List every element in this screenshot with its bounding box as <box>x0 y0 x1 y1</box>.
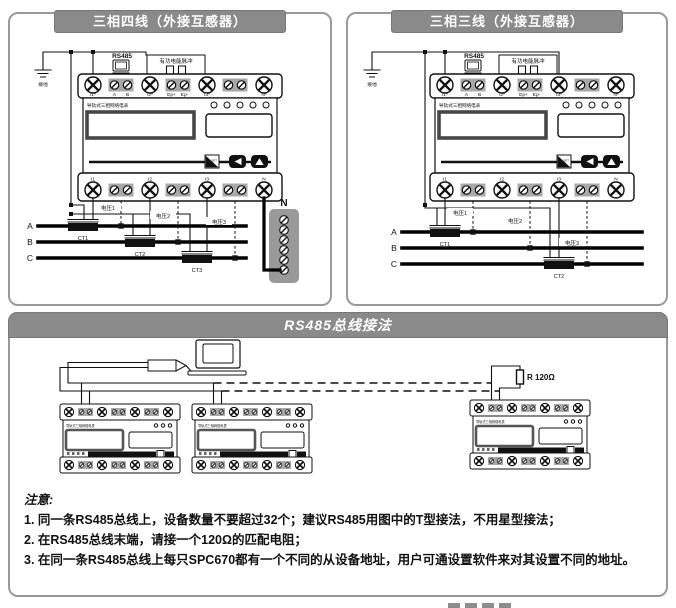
phase-label: C <box>391 259 397 269</box>
ct-label: CT3 <box>192 268 202 274</box>
ct-label: CT2 <box>135 252 145 258</box>
three-wire-diagram: 接地 RS485 有功电能脉冲 A B C CT1 CT2 电压1 电压2 电压… <box>348 14 666 304</box>
rs485-converter-icon <box>148 360 176 371</box>
bus-wire-dashed <box>214 383 500 391</box>
ground-label: 接地 <box>38 81 48 88</box>
ct3 <box>182 255 212 263</box>
panel-title-three-wire: 三相三线（外接互感器） <box>391 10 623 33</box>
note-item-3: 3. 在同一条RS485总线上每只SPC670都有一个不同的从设备地址，用户可通… <box>24 550 656 570</box>
notes-block: 注意: 1. 同一条RS485总线上，设备数量不要超过32个；建议RS485用图… <box>24 490 656 570</box>
phase-label: C <box>27 253 33 263</box>
pulse-label: 有功电能脉冲 <box>159 57 193 65</box>
termination-loop <box>492 366 521 400</box>
ct2 <box>125 239 155 247</box>
ground-label: 接地 <box>367 81 377 88</box>
ct-label: CT1 <box>440 242 450 248</box>
note-item-1: 1. 同一条RS485总线上，设备数量不要超过32个；建议RS485用图中的T型… <box>24 510 656 530</box>
note-item-2: 2. 在RS485总线末端，请接一个120Ω的匹配电阻； <box>24 530 656 550</box>
panel-three-wire: 接地 RS485 有功电能脉冲 A B C CT1 CT2 电压1 电压2 电压… <box>346 12 668 306</box>
ct1 <box>68 223 98 231</box>
rs485-label: RS485 <box>112 53 132 60</box>
bus-drop <box>82 383 222 404</box>
voltage-label: 电压3 <box>565 239 579 247</box>
phase-label: A <box>391 227 397 237</box>
voltage-label: 电压3 <box>212 218 226 226</box>
rs485-label: RS485 <box>464 53 484 60</box>
phase-label: A <box>27 221 33 231</box>
voltage-label: 电压2 <box>508 217 522 225</box>
voltage-label: 电压1 <box>453 209 467 217</box>
phase-label: B <box>391 243 397 253</box>
panel-title-four-wire: 三相四线（外接互感器） <box>54 10 286 33</box>
resistor-icon <box>517 370 524 384</box>
phase-label: B <box>27 237 33 247</box>
cutoff-caption-fragment <box>448 603 518 608</box>
ct-label: CT1 <box>78 236 88 242</box>
resistor-label: R 120Ω <box>527 373 555 382</box>
notes-title: 注意: <box>24 490 656 510</box>
pulse-label: 有功电能脉冲 <box>511 57 545 65</box>
ct1 <box>430 229 460 237</box>
voltage-label: 电压1 <box>101 204 115 212</box>
ct2 <box>544 261 574 269</box>
ct-core <box>68 220 98 223</box>
neutral-label: N <box>280 198 287 209</box>
panel-rs485-bus: R 120Ω 注意: 1. 同一条RS485总线上，设备数量不要超过32个；建议… <box>8 312 668 597</box>
panel-title-rs485: RS485总线接法 <box>8 312 668 338</box>
four-wire-diagram: 接地 RS485 有功电能脉冲 A B C CT1 CT2 CT3 <box>10 14 330 304</box>
ct-label: CT2 <box>554 274 564 280</box>
keyboard-icon <box>188 371 246 375</box>
panel-four-wire: 接地 RS485 有功电能脉冲 A B C CT1 CT2 CT3 <box>8 12 332 306</box>
voltage-label: 电压2 <box>156 212 170 220</box>
